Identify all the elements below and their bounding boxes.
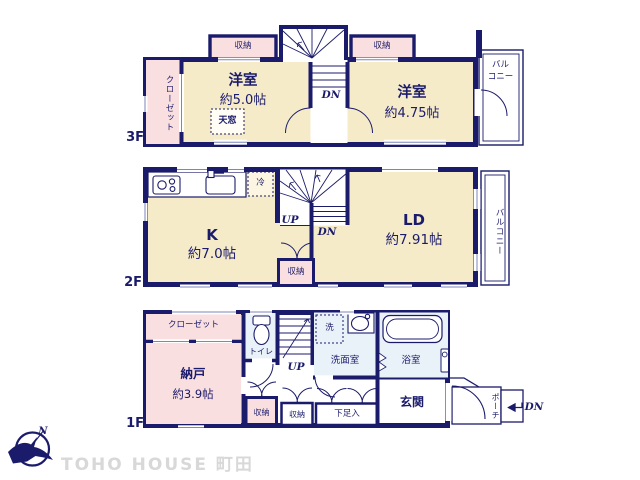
closet-1f-label: クローゼット xyxy=(146,321,241,331)
balcony-3f-label-line1: バル xyxy=(484,61,517,71)
storeroom-size: 約3.9帖 xyxy=(153,388,233,401)
floor3-plan xyxy=(143,27,524,145)
storage-1f-small-label: 収納 xyxy=(246,408,277,417)
washbasin-icon xyxy=(348,313,374,333)
storage-2f-label: 収納 xyxy=(278,268,314,278)
storage-3f-right-label: 収納 xyxy=(357,42,407,52)
room3-right-size: 約4.75帖 xyxy=(367,107,457,122)
balcony-2f-label: バルコニー xyxy=(487,205,503,259)
entrance-label: 玄関 xyxy=(382,396,442,410)
skylight-label: 天窓 xyxy=(211,116,244,126)
living-name: LD xyxy=(384,212,444,229)
shoe-cabinet-label: 下足入 xyxy=(317,410,377,420)
kitchen-counter xyxy=(148,171,246,198)
storage-1f-hall-label: 収納 xyxy=(282,410,312,419)
stairs-3f-dn-label: DN xyxy=(318,89,344,101)
storeroom-box xyxy=(146,343,241,424)
toilet-icon xyxy=(253,316,270,345)
bathtub-icon xyxy=(383,316,442,343)
stairs-2f-dn-label: DN xyxy=(314,226,340,238)
floorplan-canvas: 3F クローゼット 収納 収納 洋室 約5.0帖 天窓 DN 洋室 約4.75帖… xyxy=(0,0,640,480)
toilet-label: トイレ xyxy=(246,347,276,356)
kitchen-name: K xyxy=(192,227,232,244)
fridge-label: 冷 xyxy=(248,179,273,189)
storage-3f-left-label: 収納 xyxy=(218,42,268,52)
brand-logo-text: TOHO HOUSE 町田 xyxy=(61,450,254,475)
room3-left-size: 約5.0帖 xyxy=(198,94,288,109)
laundry-label: 洗 xyxy=(317,324,342,334)
exit-dn-label: DN xyxy=(521,401,547,413)
storeroom-name: 納戸 xyxy=(163,367,223,381)
balcony-3f xyxy=(476,30,523,145)
room3-left-name: 洋室 xyxy=(203,73,283,90)
balcony-3f-label-line2: コニー xyxy=(484,73,517,83)
floor2-label: 2F xyxy=(112,276,142,291)
stove-icon xyxy=(153,176,180,194)
kitchen-size: 約7.0帖 xyxy=(167,247,257,263)
floor1-label: 1F xyxy=(114,417,144,432)
bathroom-label: 浴室 xyxy=(391,356,431,367)
washroom-label: 洗面室 xyxy=(315,356,375,367)
closet-3f-label: クローゼット xyxy=(153,66,173,140)
shower-panel-icon xyxy=(441,349,449,372)
compass-north-label: N xyxy=(36,426,50,438)
porch-label: ポーチ xyxy=(486,392,500,421)
living-size: 約7.91帖 xyxy=(369,233,459,249)
stairs-1f-up-label: UP xyxy=(283,361,309,373)
floor3-label: 3F xyxy=(114,131,144,146)
stairs-2f-up-label: UP xyxy=(277,214,303,226)
room3-right-name: 洋室 xyxy=(372,85,452,102)
